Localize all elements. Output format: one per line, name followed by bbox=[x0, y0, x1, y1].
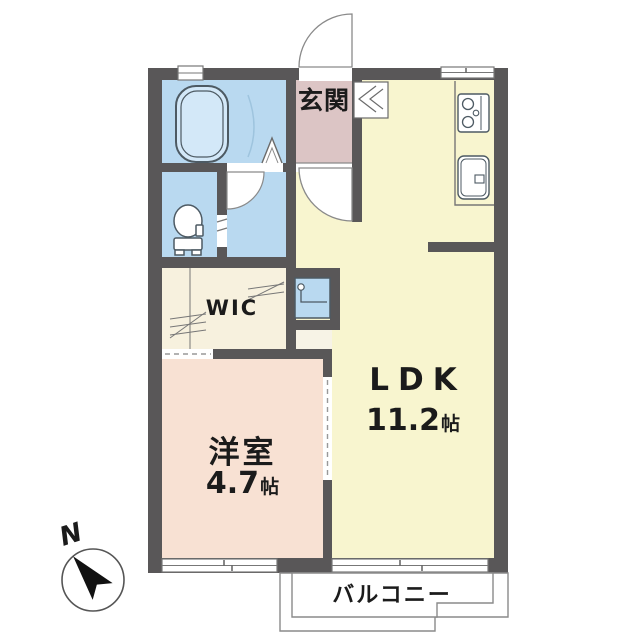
wall-right bbox=[494, 68, 508, 573]
entrance-label: 玄関 bbox=[294, 81, 354, 117]
compass-north-label: N bbox=[52, 516, 90, 554]
wall-laundry-bottom bbox=[288, 320, 340, 330]
wall-western-right-lower bbox=[323, 480, 332, 558]
bath-door-gap bbox=[227, 163, 283, 172]
balcony-label: バルコニー bbox=[292, 577, 492, 609]
wall-laundry-top bbox=[288, 268, 340, 278]
ldk-floor-right bbox=[362, 80, 494, 558]
floorplan: 玄関 LDK 11.2帖 洋室 4.7帖 WIC バルコニー N bbox=[0, 0, 640, 640]
wall-western-right-upper bbox=[323, 359, 332, 377]
wall-bottom bbox=[148, 558, 508, 573]
western-sliding-gap bbox=[323, 377, 332, 480]
wall-bath-bottom-left bbox=[162, 163, 227, 172]
wic-opening-gap bbox=[162, 349, 213, 359]
entrance-door-gap bbox=[299, 66, 352, 81]
front-door-swing bbox=[299, 14, 352, 67]
toilet-floor bbox=[162, 172, 217, 257]
wic-label: WIC bbox=[170, 296, 294, 320]
ldk-label: LDK bbox=[332, 362, 494, 398]
wall-left bbox=[148, 68, 162, 573]
wall-kitchen-stub bbox=[428, 242, 494, 252]
bathroom-floor bbox=[162, 80, 286, 163]
wall-toilet-divider-lower bbox=[217, 247, 227, 257]
compass bbox=[62, 548, 124, 611]
wall-bath-bottom-right bbox=[283, 163, 296, 172]
ldk-size-label: 11.2帖 bbox=[332, 403, 494, 438]
wall-laundry-right bbox=[330, 278, 340, 320]
wall-below-sanitary bbox=[162, 257, 296, 268]
wall-toilet-divider-upper bbox=[217, 172, 227, 215]
entrance-step-gap bbox=[296, 163, 352, 172]
hall-pocket-floor bbox=[296, 330, 332, 349]
western-room-size-label: 4.7帖 bbox=[162, 466, 323, 501]
wall-wic-bottom bbox=[213, 349, 332, 359]
washroom-floor bbox=[227, 172, 286, 257]
toilet-door-gap bbox=[217, 215, 227, 247]
